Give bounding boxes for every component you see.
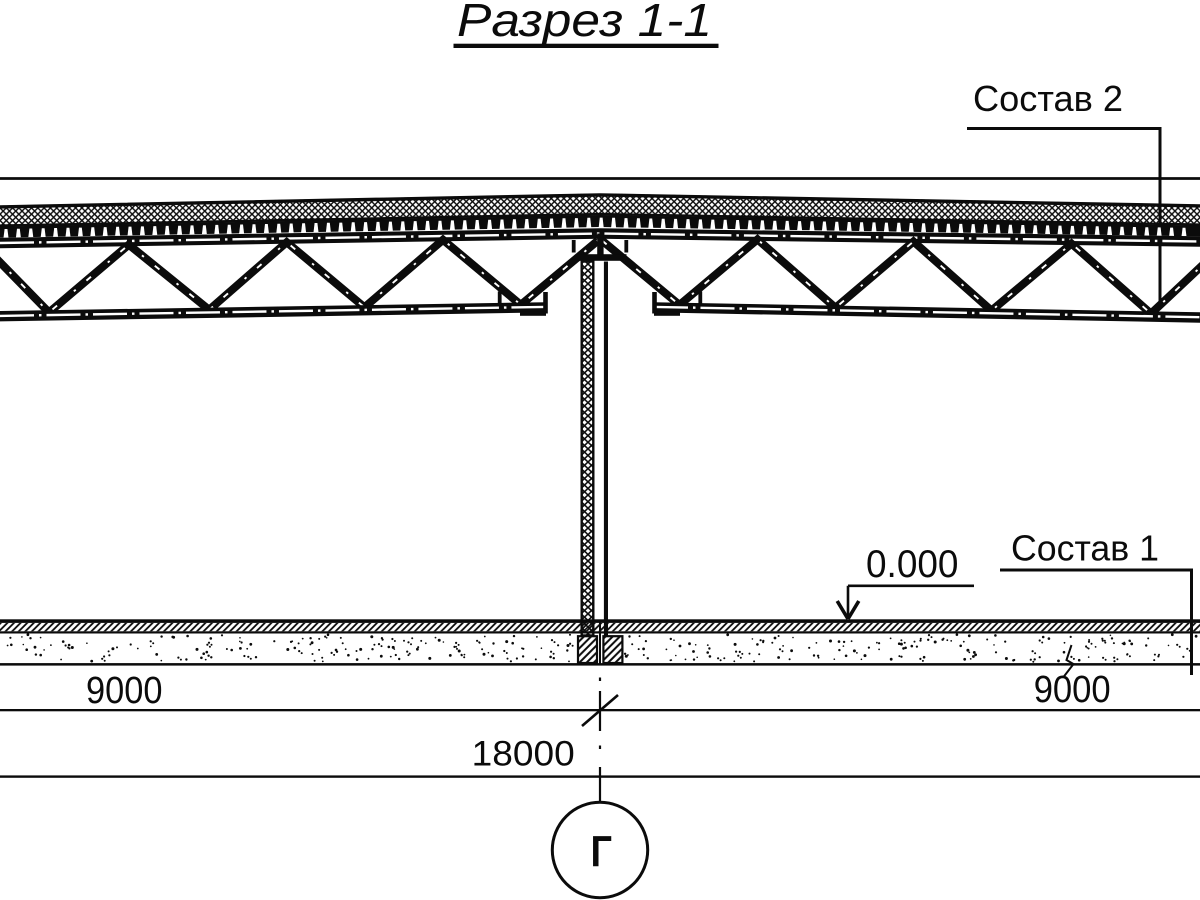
svg-text:Разрез 1-1: Разрез 1-1	[457, 0, 712, 46]
svg-text:9000: 9000	[1034, 669, 1111, 711]
svg-text:Состав 2: Состав 2	[973, 78, 1123, 119]
svg-text:0.000: 0.000	[866, 543, 959, 586]
svg-text:Состав 1: Состав 1	[1011, 528, 1159, 569]
svg-text:18000: 18000	[472, 735, 575, 774]
svg-text:Г: Г	[591, 827, 613, 876]
svg-text:9000: 9000	[86, 670, 163, 712]
